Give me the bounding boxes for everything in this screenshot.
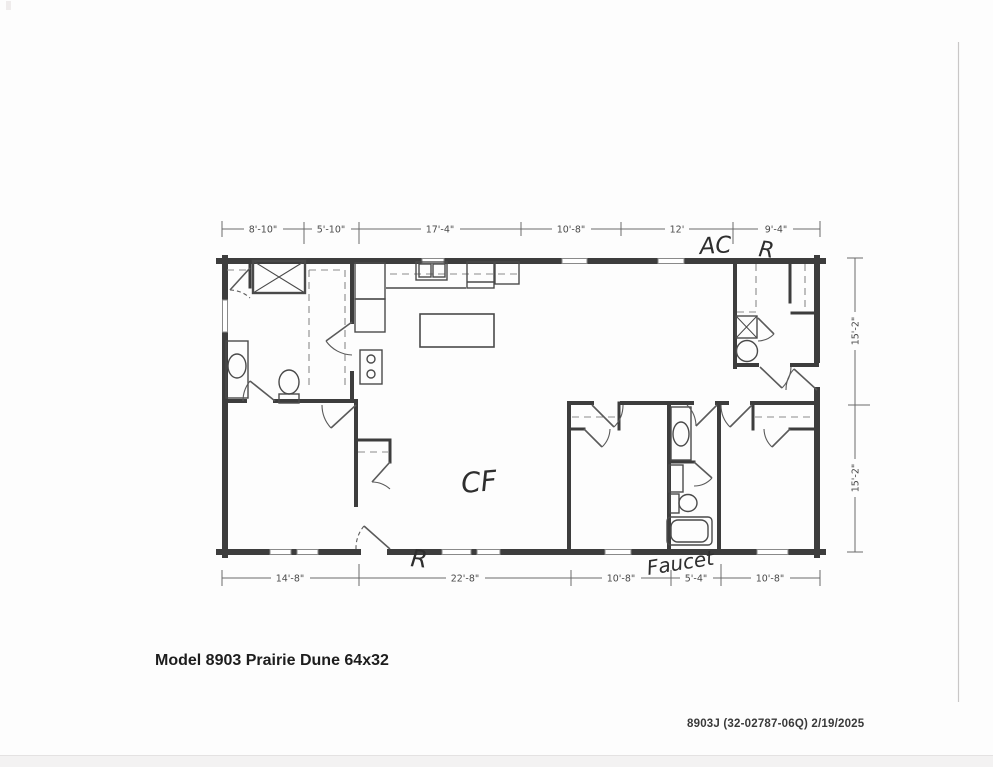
master-bedroom-door xyxy=(322,405,356,428)
hallbath-vanity-fixture xyxy=(671,407,691,460)
entry-closet xyxy=(356,440,390,462)
window xyxy=(605,550,631,555)
dim-bottom-3: 10'-8" xyxy=(607,574,636,585)
dim-top-1: 8'-10" xyxy=(249,225,278,236)
window xyxy=(223,300,228,332)
right-dim-line xyxy=(847,258,870,552)
window xyxy=(562,259,587,264)
dim-top-6: 9'-4" xyxy=(765,225,788,236)
washer-fixture xyxy=(736,316,757,338)
dryer-fixture xyxy=(737,341,758,362)
dim-bottom-2: 22'-8" xyxy=(451,574,480,585)
master-closet-rod xyxy=(309,270,345,388)
dim-top-5: 12' xyxy=(670,225,685,236)
window xyxy=(757,550,788,555)
dim-top-3: 17'-4" xyxy=(426,225,455,236)
model-title: Model 8903 Prairie Dune 64x32 xyxy=(155,652,389,669)
scan-artifacts xyxy=(0,1,993,767)
bedroom3-closet xyxy=(753,403,817,429)
dim-top-2: 5'-10" xyxy=(317,225,346,236)
scanned-floorplan-page: 8'-10" 5'-10" 17'-4" 10'-8" 12' 9'-4" 14… xyxy=(0,0,993,767)
dim-top-4: 10'-8" xyxy=(557,225,586,236)
bedroom3-door xyxy=(721,405,752,427)
window xyxy=(477,550,500,555)
utility-pantry-door xyxy=(758,318,774,341)
closet-walls xyxy=(250,261,817,462)
window xyxy=(442,550,471,555)
dim-bottom-1: 14'-8" xyxy=(276,574,305,585)
bottom-dim-line xyxy=(222,564,820,586)
kitchen-sink-fixture xyxy=(416,262,447,280)
shower-fixture xyxy=(253,261,305,293)
window xyxy=(422,259,444,264)
hallbath-toilet-fixture xyxy=(670,494,697,513)
kitchen-range-fixture xyxy=(360,350,382,384)
bathtub-fixture xyxy=(667,517,712,545)
small-closet-door xyxy=(230,268,250,298)
dim-right-1: 15'-2" xyxy=(851,317,862,346)
window xyxy=(297,550,318,555)
hallbath-inner-door xyxy=(694,462,712,486)
annotation-r-top: R xyxy=(757,237,775,264)
bedroom3-closet-door xyxy=(764,429,790,447)
floorplan-drawing: 8'-10" 5'-10" 17'-4" 10'-8" 12' 9'-4" 14… xyxy=(0,0,993,767)
utility-closet xyxy=(790,261,817,313)
window xyxy=(658,259,684,264)
hallbath-cabinet xyxy=(669,465,683,492)
bedroom2-closet-door xyxy=(584,429,610,447)
annotation-r-bottom: R xyxy=(409,544,429,574)
window xyxy=(270,550,291,555)
windows xyxy=(223,259,789,555)
annotation-ac: AC xyxy=(697,232,732,260)
master-closet-door xyxy=(326,322,352,355)
stove-fixture xyxy=(495,262,519,284)
dim-bottom-4: 5'-4" xyxy=(685,574,708,585)
dashed-lines xyxy=(227,264,812,452)
kitchen-tall-cabinets xyxy=(355,263,385,332)
annotation-cf: CF xyxy=(460,464,499,500)
exterior-walls xyxy=(219,258,823,555)
master-toilet-fixture xyxy=(279,370,299,403)
dim-bottom-5: 10'-8" xyxy=(756,574,785,585)
doors xyxy=(230,268,817,549)
utility-cabinet xyxy=(737,264,756,312)
plan-code: 8903J (32-02787-06Q) 2/19/2025 xyxy=(687,718,865,730)
interior-walls xyxy=(225,261,817,549)
front-door xyxy=(356,526,390,549)
dishwasher-fixture xyxy=(467,262,494,288)
entry-closet-door xyxy=(372,462,390,489)
dim-right-2: 15'-2" xyxy=(851,464,862,493)
kitchen-island xyxy=(420,314,494,347)
